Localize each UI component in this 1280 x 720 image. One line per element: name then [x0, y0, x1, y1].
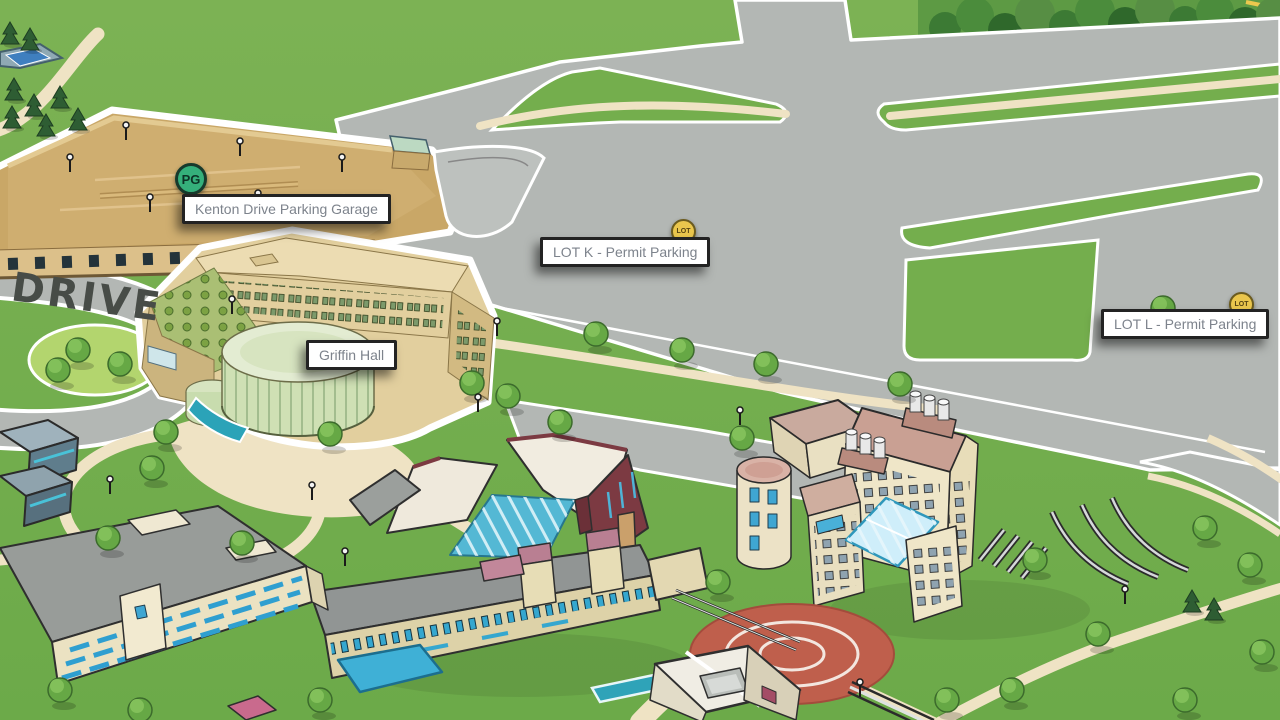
marker-label-text: Kenton Drive Parking Garage — [195, 201, 378, 217]
marker-label-text: LOT K - Permit Parking — [553, 244, 697, 260]
lot-l-marker-text: LOT — [1235, 301, 1249, 308]
marker-label-text: Griffin Hall — [319, 347, 384, 363]
marker-label-griffin-hall[interactable]: Griffin Hall — [306, 340, 397, 370]
building-griffin-hall[interactable] — [138, 230, 494, 447]
marker-label-text: LOT L - Permit Parking — [1114, 316, 1256, 332]
parking-garage-marker-icon[interactable]: PG — [175, 163, 207, 195]
campus-map-canvas: DRIVE — [0, 0, 1280, 720]
marker-label-kenton-drive-parking-garage[interactable]: Kenton Drive Parking Garage — [182, 194, 391, 224]
marker-label-lot-k[interactable]: LOT K - Permit Parking — [540, 237, 710, 267]
parking-garage-marker-text: PG — [182, 172, 201, 187]
lot-k-marker-text: LOT — [677, 228, 691, 235]
marker-label-lot-l[interactable]: LOT L - Permit Parking — [1101, 309, 1269, 339]
campus-map: DRIVE PG Kenton Drive Parking Garage Gri… — [0, 0, 1280, 720]
